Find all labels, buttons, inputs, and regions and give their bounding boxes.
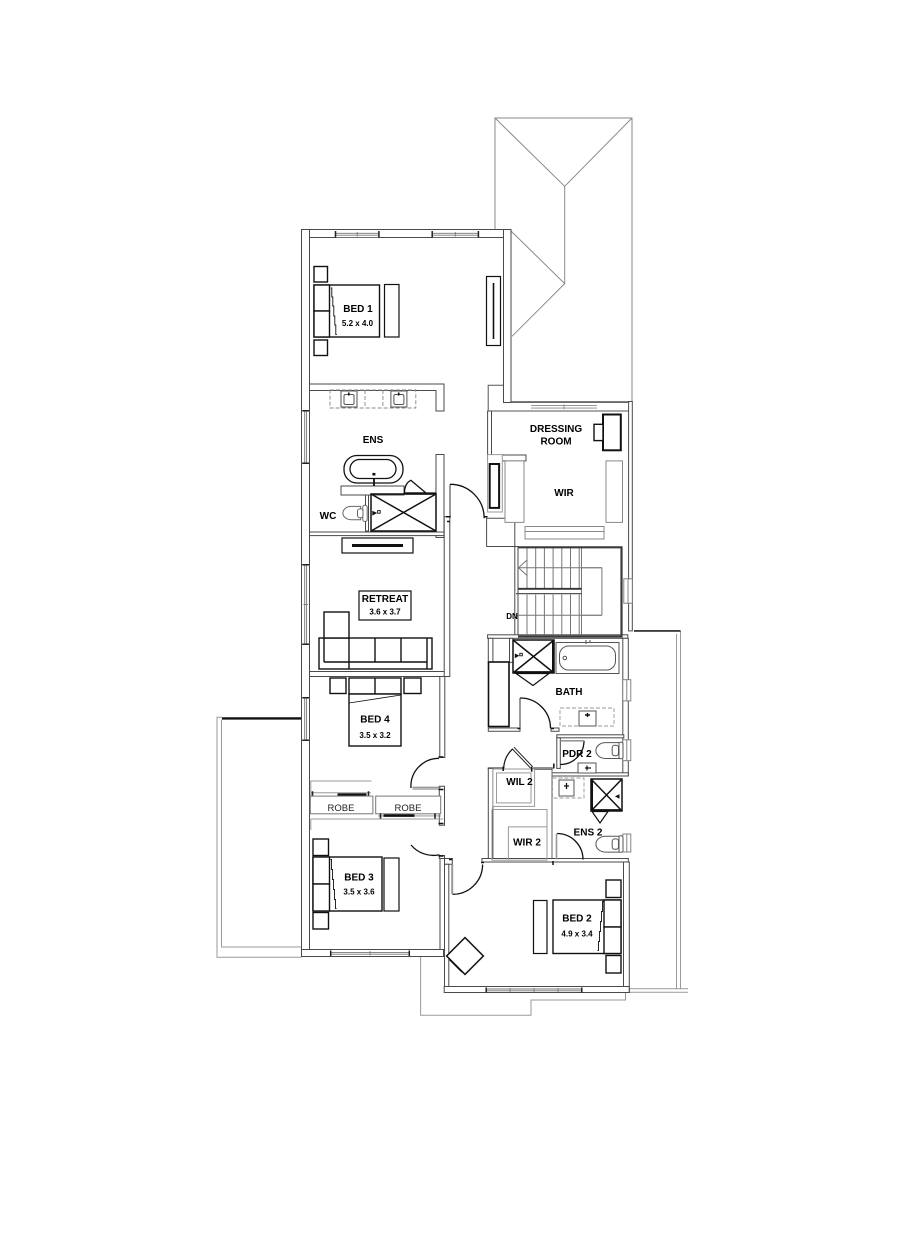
svg-text:3.6 x 3.7: 3.6 x 3.7 xyxy=(369,608,401,617)
svg-text:3.5 x 3.2: 3.5 x 3.2 xyxy=(359,731,391,740)
svg-text:5.2 x 4.0: 5.2 x 4.0 xyxy=(342,319,374,328)
svg-text:ROOM: ROOM xyxy=(540,437,571,448)
svg-text:ENS: ENS xyxy=(363,435,384,446)
svg-text:ROBE: ROBE xyxy=(328,803,355,814)
svg-text:BED 3: BED 3 xyxy=(344,873,374,884)
svg-text:ENS 2: ENS 2 xyxy=(574,828,603,839)
svg-text:WIR 2: WIR 2 xyxy=(513,838,541,849)
svg-text:DN: DN xyxy=(506,612,518,621)
svg-text:BED 4: BED 4 xyxy=(360,715,390,726)
svg-text:WC: WC xyxy=(320,511,337,522)
svg-text:DRESSING: DRESSING xyxy=(530,424,582,435)
svg-text:BED 2: BED 2 xyxy=(562,914,592,925)
svg-text:WIL 2: WIL 2 xyxy=(506,777,533,788)
svg-text:ROBE: ROBE xyxy=(395,803,422,814)
svg-text:4.9 x 3.4: 4.9 x 3.4 xyxy=(561,930,593,939)
svg-text:3.5 x 3.6: 3.5 x 3.6 xyxy=(343,888,375,897)
svg-text:RETREAT: RETREAT xyxy=(362,594,408,605)
svg-text:PDR 2: PDR 2 xyxy=(562,749,592,760)
svg-text:BED 1: BED 1 xyxy=(343,304,373,315)
svg-text:WIR: WIR xyxy=(554,488,574,499)
svg-text:BATH: BATH xyxy=(555,687,582,698)
